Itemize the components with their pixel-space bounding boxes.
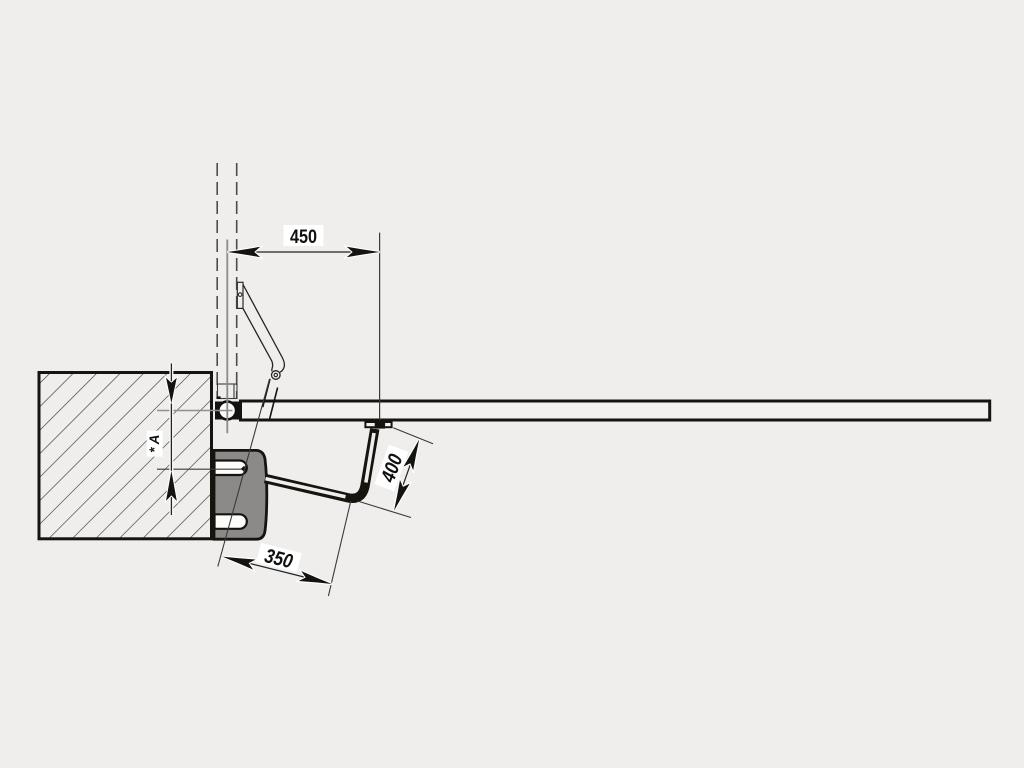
svg-text:* A: * A [147,435,162,453]
svg-text:450: 450 [290,226,317,248]
